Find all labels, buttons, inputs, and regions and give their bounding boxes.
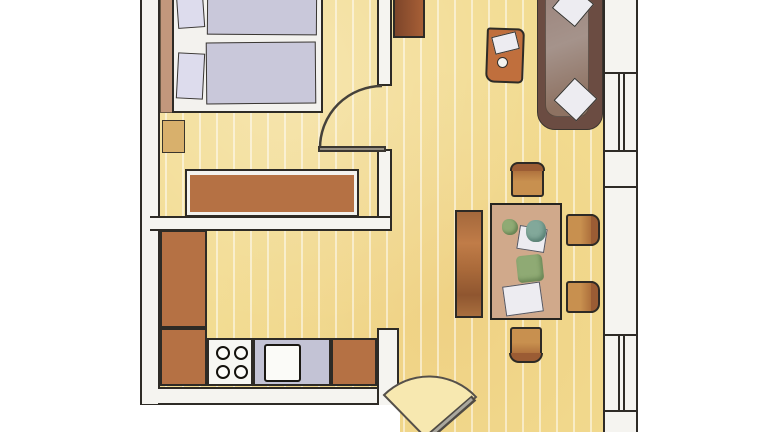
wall-joint bbox=[605, 334, 636, 336]
sink-counter bbox=[253, 338, 331, 386]
dining-chair-right-2 bbox=[566, 281, 595, 313]
chair-back bbox=[510, 162, 545, 171]
stove bbox=[207, 338, 253, 386]
plate bbox=[502, 282, 544, 317]
stove-burner bbox=[216, 365, 230, 379]
sink-basin bbox=[264, 344, 301, 382]
wall-joint bbox=[605, 410, 636, 412]
chair-back bbox=[591, 214, 600, 246]
dresser-top bbox=[190, 175, 354, 212]
mattress-right bbox=[206, 42, 317, 105]
dish bbox=[516, 254, 545, 284]
stove-burner bbox=[216, 346, 230, 360]
wall-joint bbox=[605, 72, 636, 74]
exterior-area bbox=[140, 405, 400, 432]
window-glazing bbox=[618, 336, 620, 410]
wall-joint bbox=[605, 150, 636, 152]
pillow-right bbox=[176, 52, 205, 99]
dining-chair-right-1 bbox=[566, 214, 595, 246]
wall-cabinet bbox=[393, 0, 425, 38]
dresser bbox=[185, 169, 359, 217]
floor-plan bbox=[0, 0, 768, 432]
outer-wall-left bbox=[140, 0, 160, 406]
bowl bbox=[497, 57, 508, 68]
kitchen-counter-left-lower bbox=[160, 328, 207, 386]
plant bbox=[502, 219, 518, 235]
nightstand bbox=[162, 120, 185, 153]
bedroom-wall-upper bbox=[377, 0, 392, 86]
bedroom-wall-lower bbox=[377, 149, 392, 216]
dining-chair-bottom bbox=[510, 327, 542, 358]
dining-bench bbox=[455, 210, 483, 318]
entry-wall-stub bbox=[377, 328, 399, 405]
outer-wall-right bbox=[603, 0, 638, 432]
mattress-left bbox=[207, 0, 317, 35]
kitchen-counter-left-upper bbox=[160, 230, 207, 328]
teapot bbox=[526, 220, 546, 242]
chair-back bbox=[509, 353, 543, 363]
dining-table bbox=[490, 203, 562, 320]
window-glazing bbox=[623, 336, 625, 410]
dining-chair-top bbox=[511, 166, 544, 197]
pillow-left bbox=[176, 0, 205, 29]
outer-wall-bottom bbox=[158, 387, 399, 405]
stove-burner bbox=[234, 365, 248, 379]
wall-joint bbox=[605, 186, 636, 188]
bedroom-kitchen-wall bbox=[150, 216, 392, 231]
window-glazing bbox=[618, 74, 620, 150]
window-glazing bbox=[623, 74, 625, 150]
chair-back bbox=[591, 281, 600, 313]
stove-burner bbox=[234, 346, 248, 360]
kitchen-counter-right bbox=[331, 338, 377, 386]
